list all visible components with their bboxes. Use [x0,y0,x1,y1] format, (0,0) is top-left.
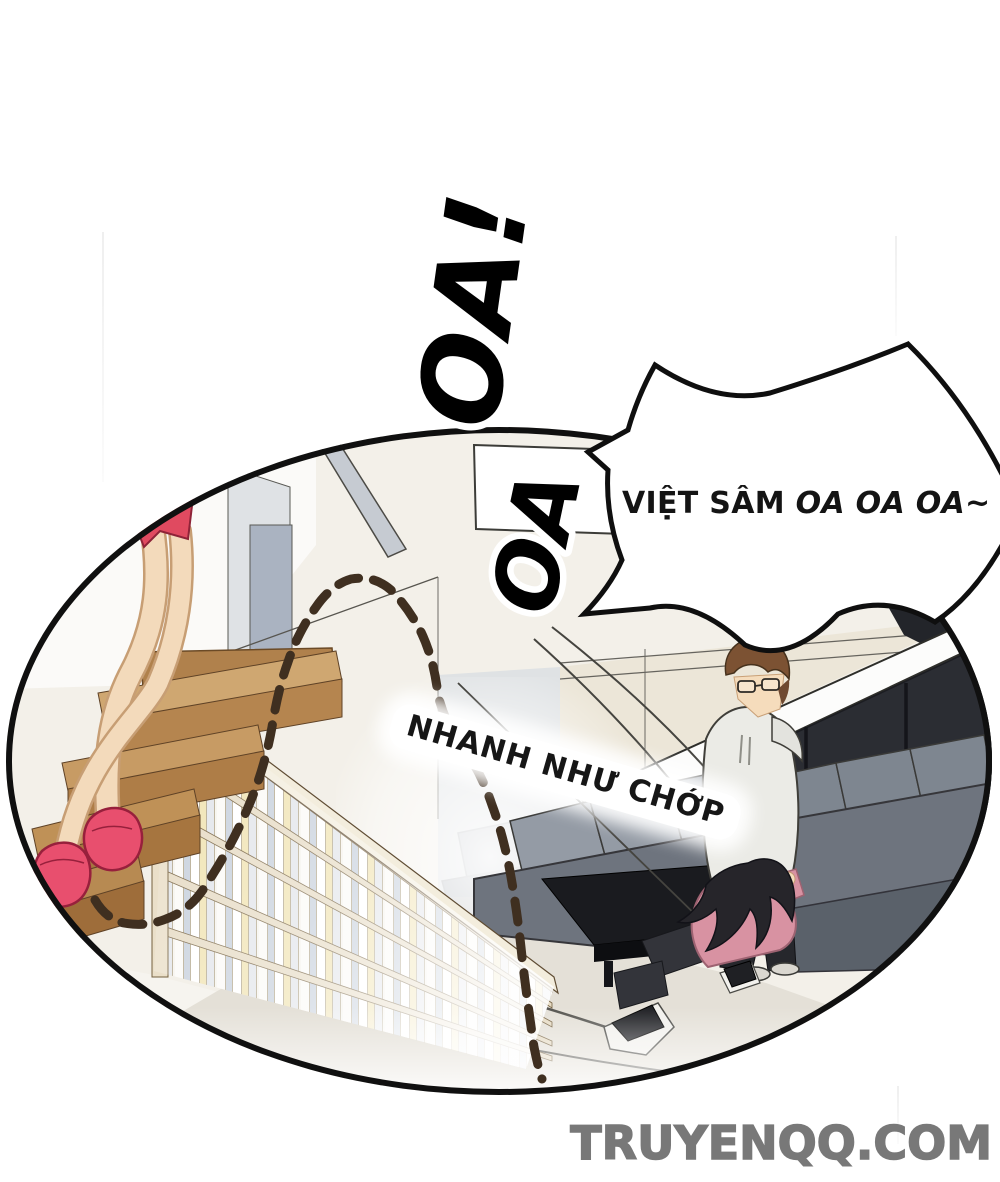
page-seam-left [102,232,104,482]
bubble-cry: OA OA OA~ [796,486,991,521]
comic-page: VIỆT SÂM OA OA OA~ OA! OA NHANH NHƯ CHỚP… [0,0,1000,1182]
slipper-left [33,843,90,907]
sfx-oa-upper: OA! [394,186,555,435]
bottom-fade [6,1007,992,1095]
watermark: TRUYENQQ.COM [570,1116,992,1170]
page-seam-right [895,236,897,336]
glasses-right-lens [762,679,779,690]
speech-bubble-text: VIỆT SÂM OA OA OA~ [622,486,1000,521]
bubble-call: VIỆT SÂM [622,486,785,521]
glasses-left-lens [738,681,755,692]
slipper-right [84,808,142,870]
